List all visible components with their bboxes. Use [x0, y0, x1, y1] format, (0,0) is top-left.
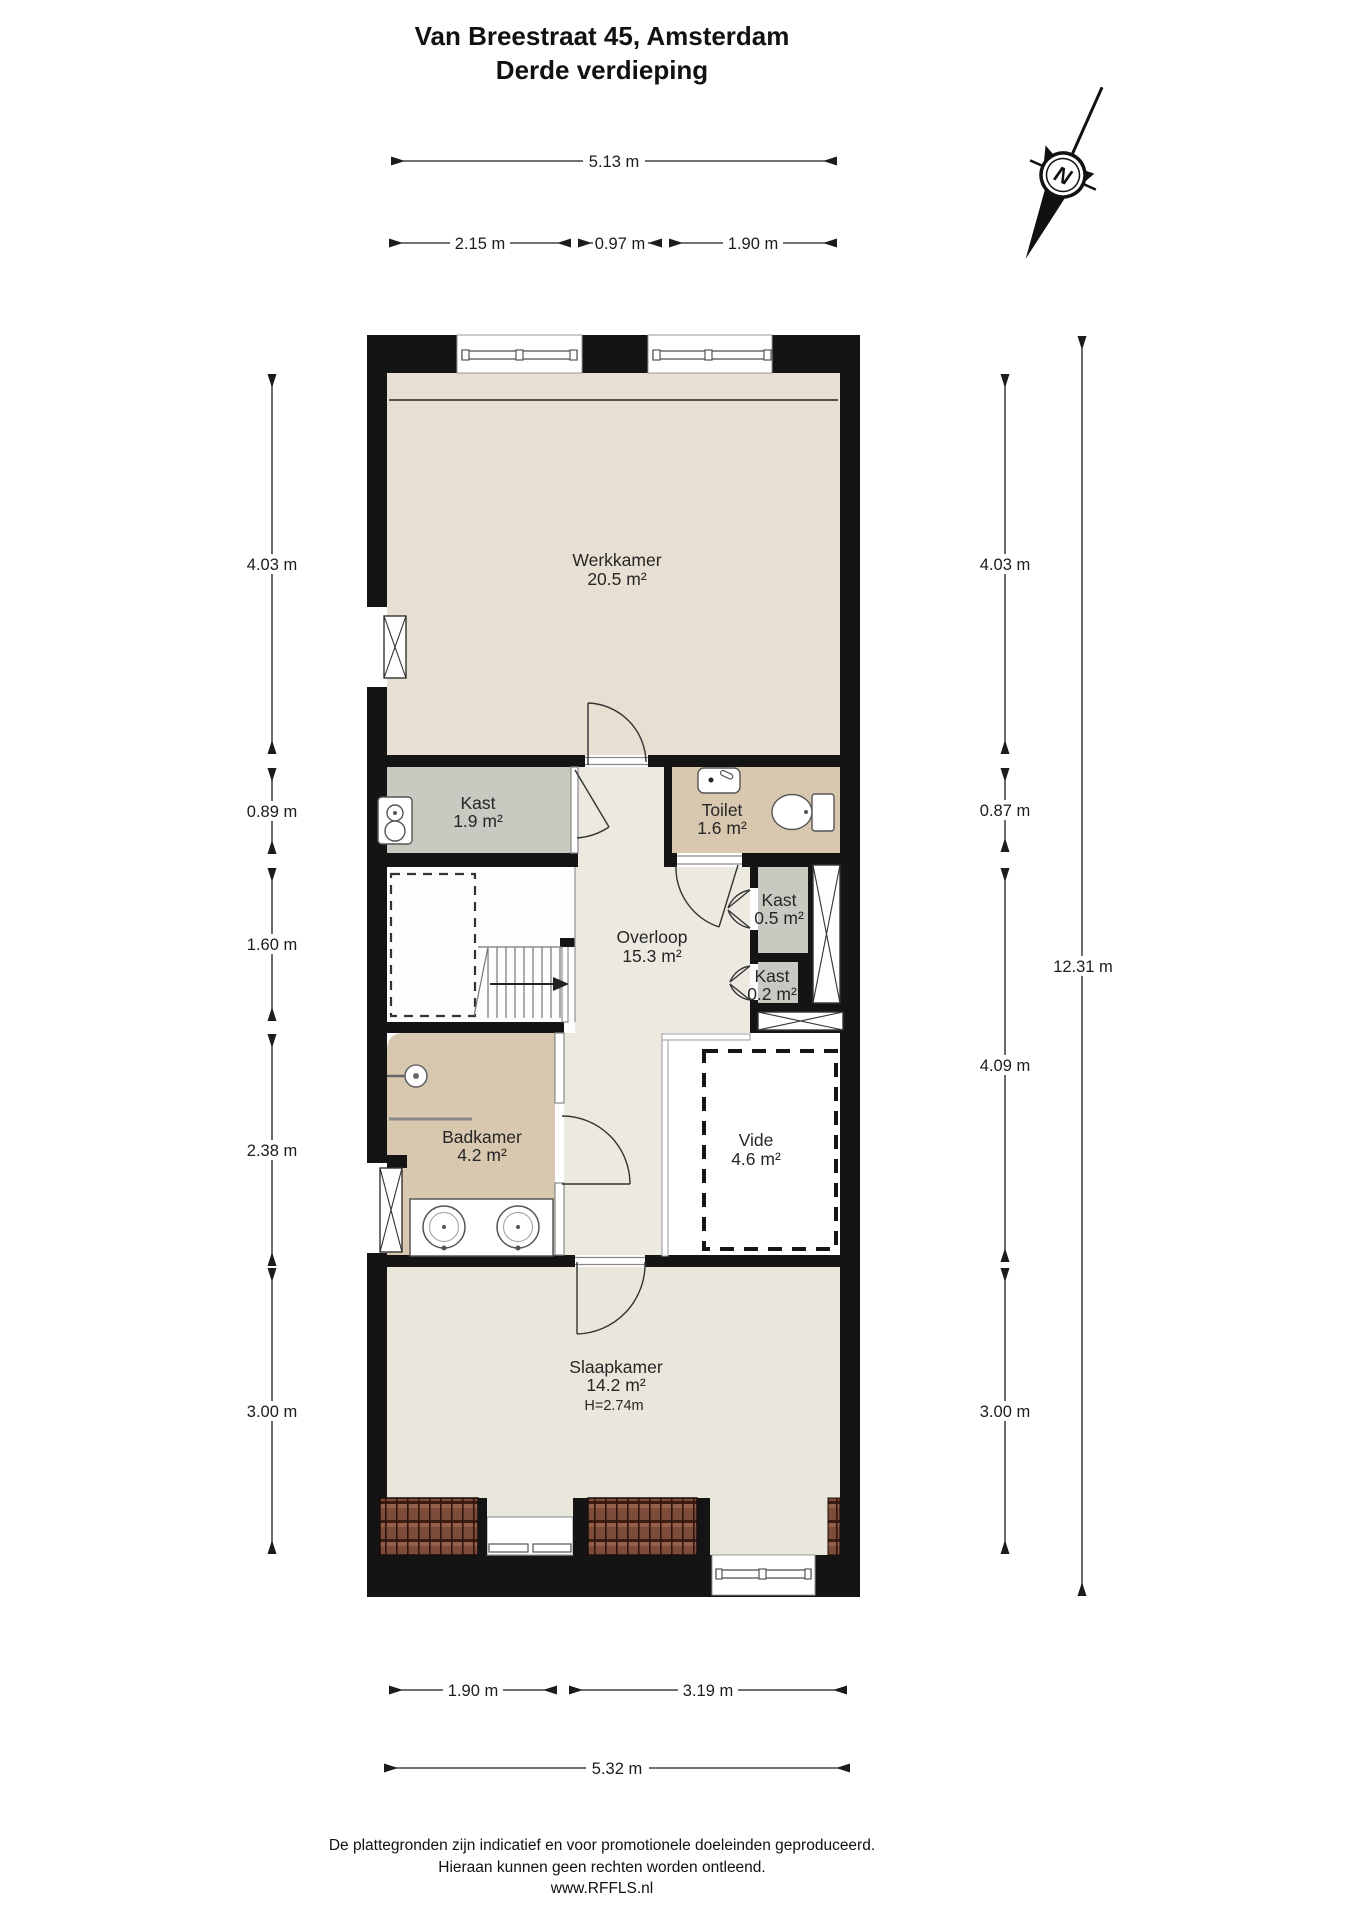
overloop-area: 15.3 m² [622, 946, 681, 966]
shaft-x-horizontal [758, 1012, 843, 1030]
title-address: Van Breestraat 45, Amsterdam [415, 21, 790, 51]
wall-kast05-south [750, 953, 813, 962]
overloop-name: Overloop [616, 927, 687, 947]
dim-left-1: 4.03 m [247, 556, 297, 574]
page-title: Van Breestraat 45, Amsterdam Derde verdi… [415, 21, 790, 85]
wall-band2-mid [664, 853, 677, 867]
toilet-area: 1.6 m² [697, 818, 747, 838]
dormer-pier-1 [478, 1498, 487, 1555]
vide-area: 4.6 m² [731, 1149, 781, 1169]
window-top-left [457, 335, 582, 373]
slaapkamer-name: Slaapkamer [569, 1357, 663, 1377]
badkamer-area: 4.2 m² [457, 1145, 507, 1165]
vanity-double-sink [410, 1199, 553, 1256]
wall-slaapkamer-north-left [387, 1255, 575, 1267]
floorplan-canvas: Van Breestraat 45, Amsterdam Derde verdi… [0, 0, 1358, 1920]
shaft-x-vertical [813, 865, 840, 1003]
dim-bottom-total: 5.32 m [592, 1760, 642, 1778]
badkamer-east-wall-south [555, 1183, 564, 1255]
wall-shaft-west [808, 863, 813, 1003]
kast-groot-east-wall [571, 767, 578, 853]
dim-top-seg-2: 0.97 m [595, 235, 645, 253]
window-left-werkkamer [367, 607, 406, 687]
roof-tile-center [588, 1498, 697, 1555]
footer-disclaimer: De plattegronden zijn indicatief en voor… [329, 1837, 875, 1897]
dim-right-4: 3.00 m [980, 1403, 1030, 1421]
wall-kast02-east [798, 962, 808, 1003]
dim-bottom-seg-2: 3.19 m [683, 1682, 733, 1700]
toilet-bowl-icon [772, 794, 834, 831]
toilet-name: Toilet [702, 800, 743, 820]
dim-bottom-seg-1: 1.90 m [448, 1682, 498, 1700]
window-bottom-right [712, 1555, 815, 1595]
kast-groot-name: Kast [460, 793, 495, 813]
toilet-sink-icon [698, 768, 740, 793]
vide-west-wall [662, 1034, 668, 1256]
kast-02-area: 0.2 m² [747, 984, 797, 1004]
kast-02-name: Kast [754, 966, 789, 986]
wall-band2-right [742, 853, 860, 867]
wall-werkkamer-south-left [387, 755, 585, 767]
wall-badkamer-west-stub [387, 1155, 407, 1168]
stair-banister-stub [560, 938, 575, 947]
vide-name: Vide [739, 1130, 774, 1150]
window-left-badkamer [367, 1163, 402, 1253]
wall-slaapkamer-north-right [645, 1255, 860, 1267]
dim-right-total: 12.31 m [1053, 958, 1113, 976]
wall-band2-left [387, 853, 578, 867]
threshold-werkkamer [585, 755, 648, 767]
dim-left-4: 2.38 m [247, 1142, 297, 1160]
boiler-icon [378, 797, 412, 844]
wall-top [367, 335, 860, 373]
wall-toilet-west [664, 767, 672, 867]
roof-tile-right [828, 1498, 840, 1555]
dormer-pier-2 [573, 1498, 588, 1555]
wall-left [367, 335, 387, 1597]
dim-right-2: 0.87 m [980, 802, 1030, 820]
footer-line-1: De plattegronden zijn indicatief en voor… [329, 1837, 875, 1854]
title-floor: Derde verdieping [496, 55, 708, 85]
compass-north-icon: N [993, 73, 1135, 274]
wall-werkkamer-south-right [648, 755, 840, 767]
dim-left-3: 1.60 m [247, 936, 297, 954]
dim-right-1: 4.03 m [980, 556, 1030, 574]
dim-top-seg-3: 1.90 m [728, 235, 778, 253]
window-dormer-slaapkamer [487, 1517, 573, 1555]
vide-north-wall [662, 1034, 750, 1040]
kast-groot-area: 1.9 m² [453, 811, 503, 831]
wall-right [840, 335, 860, 1597]
wall-spine-1 [750, 867, 758, 888]
dim-left-5: 3.00 m [247, 1403, 297, 1421]
overloop-floor-south [564, 1033, 664, 1255]
threshold-slaapkamer [575, 1255, 645, 1267]
dim-left-2: 0.89 m [247, 803, 297, 821]
stairwell-floor [387, 867, 575, 1022]
kast-05-area: 0.5 m² [754, 908, 804, 928]
badkamer-name: Badkamer [442, 1127, 522, 1147]
dim-top-seg-1: 2.15 m [455, 235, 505, 253]
dormer-pier-3 [697, 1498, 710, 1555]
wall-shaft-south [750, 1003, 843, 1012]
roof-tile-left [380, 1498, 478, 1555]
footer-line-2: Hieraan kunnen geen rechten worden ontle… [438, 1859, 765, 1876]
window-top-right [648, 335, 772, 373]
footer-line-3: www.RFFLS.nl [550, 1880, 654, 1897]
badkamer-east-wall-north [555, 1033, 564, 1103]
slaapkamer-area: 14.2 m² [586, 1375, 645, 1395]
threshold-toilet [677, 853, 742, 867]
kast-05-name: Kast [761, 890, 796, 910]
werkkamer-area: 20.5 m² [587, 569, 646, 589]
wall-badkamer-north [367, 1022, 564, 1033]
slaapkamer-height: H=2.74m [584, 1398, 643, 1414]
overloop-floor-north [578, 767, 664, 867]
floorplan-page: Van Breestraat 45, Amsterdam Derde verdi… [0, 0, 1358, 1920]
wall-xbox-west [750, 1012, 758, 1033]
dim-right-3: 4.09 m [980, 1057, 1030, 1075]
werkkamer-name: Werkkamer [572, 550, 661, 570]
dim-top-total: 5.13 m [589, 153, 639, 171]
